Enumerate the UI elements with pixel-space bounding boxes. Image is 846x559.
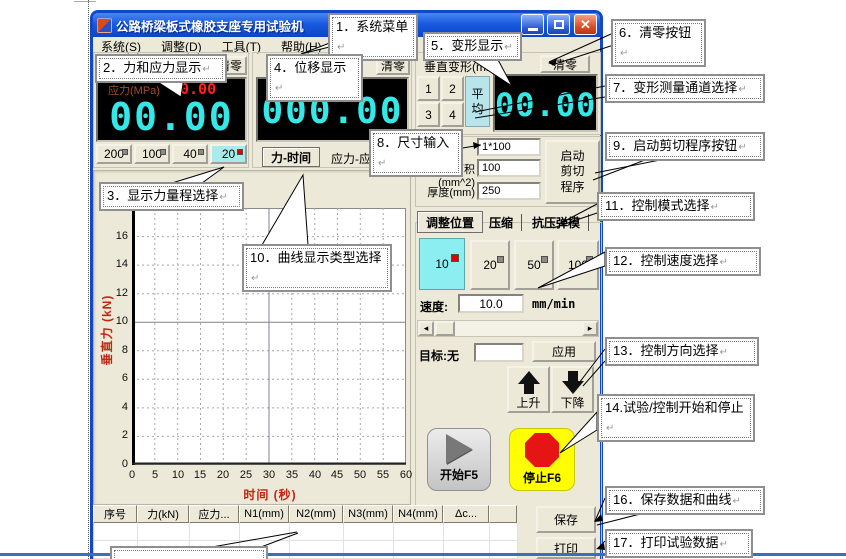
minimize-button[interactable] xyxy=(521,14,544,35)
col-header-stress: 应力... xyxy=(189,505,239,523)
speed-led xyxy=(586,256,593,263)
x-tick: 45 xyxy=(325,469,349,481)
callout-label: 4．位移显示 xyxy=(274,60,346,75)
x-tick: 25 xyxy=(234,469,258,481)
channel-button-1[interactable]: 1 xyxy=(417,76,440,101)
table-cell xyxy=(344,523,394,541)
callout-10-curve-type-select: 10．曲线显示类型选择↵ xyxy=(242,244,392,292)
callout-label: 12．控制速度选择 xyxy=(613,253,718,268)
pilcrow-mark: ↵ xyxy=(719,347,727,358)
range-led xyxy=(198,149,204,155)
stop-button[interactable]: 停止F6 xyxy=(509,428,575,491)
range-label: 20 xyxy=(222,147,235,161)
range-button-200[interactable]: 200 xyxy=(96,144,132,164)
callout-label: 13．控制方向选择 xyxy=(613,343,718,358)
stress-label: 应力(MPa) xyxy=(108,82,160,98)
table-cell xyxy=(138,523,190,541)
up-label: 上升 xyxy=(516,394,540,411)
callout-16-save-data-curve: 16．保存数据和曲线↵ xyxy=(605,486,765,515)
pilcrow-mark: ↵ xyxy=(732,496,740,507)
save-button[interactable]: 保存 xyxy=(536,506,596,533)
callout-11-control-mode-select: 11．控制模式选择↵ xyxy=(597,192,755,221)
speed-label: 100 xyxy=(568,258,588,272)
callout-label: 5．变形显示 xyxy=(431,38,503,53)
callout-label: 9．启动剪切程序按钮 xyxy=(613,138,737,153)
table-cell xyxy=(240,523,290,541)
area-input[interactable]: 100 xyxy=(477,159,541,177)
pilcrow-mark: ↵ xyxy=(504,42,512,53)
table-cell xyxy=(490,541,518,559)
callout-4-displacement-display: 4．位移显示↵ xyxy=(266,54,363,102)
range-label: 200 xyxy=(104,147,124,161)
deformation-value: 00.00 xyxy=(495,89,596,121)
speed-button-10-selected[interactable]: 10 xyxy=(419,238,465,290)
down-arrow-icon xyxy=(561,371,585,394)
callout-9-shear-program-button: 9．启动剪切程序按钮↵ xyxy=(605,132,765,161)
stop-label: 停止F6 xyxy=(523,471,561,485)
callout-13-control-direction-select: 13．控制方向选择↵ xyxy=(605,337,759,366)
callout-label: 1．系统菜单 xyxy=(336,19,408,34)
callout-label: 14.试验/控制开始和停止 xyxy=(605,400,744,415)
x-tick: 50 xyxy=(348,469,372,481)
y-tick: 2 xyxy=(98,429,128,441)
table-cell xyxy=(344,541,394,559)
channel-average-button[interactable]: 平均 xyxy=(465,76,490,127)
channel-button-3[interactable]: 3 xyxy=(417,102,440,127)
scrollbar-left-arrow[interactable]: ◂ xyxy=(418,321,434,336)
canvas-dotted-edge xyxy=(88,0,89,559)
range-led xyxy=(160,149,166,155)
x-tick: 55 xyxy=(371,469,395,481)
scrollbar-right-arrow[interactable]: ▸ xyxy=(582,321,598,336)
callout-2-force-stress-display: 2．力和应力显示↵ xyxy=(95,54,227,83)
thickness-input[interactable]: 250 xyxy=(477,182,541,200)
pilcrow-mark: ↵ xyxy=(620,48,628,59)
pilcrow-mark: ↵ xyxy=(738,142,746,153)
speed-unit-label: mm/min xyxy=(532,297,575,311)
range-button-40[interactable]: 40 xyxy=(172,144,208,164)
x-tick: 15 xyxy=(188,469,212,481)
range-label: 100 xyxy=(142,147,162,161)
x-tick: 10 xyxy=(166,469,190,481)
table-cell xyxy=(394,541,444,559)
table-cell xyxy=(290,541,344,559)
col-header-delta: Δc... xyxy=(443,505,489,523)
x-tick: 5 xyxy=(143,469,167,481)
start-label: 开始F5 xyxy=(440,468,478,482)
callout-5-deformation-display: 5．变形显示↵ xyxy=(423,32,522,61)
minimize-icon xyxy=(528,28,538,31)
callout-17-print-test-data: 17．打印试验数据↵ xyxy=(605,529,753,558)
callout-6-clear-button: 6．清零按钮↵ xyxy=(611,19,706,67)
col-header-index: 序号 xyxy=(93,505,137,523)
x-tick: 20 xyxy=(211,469,235,481)
maximize-button[interactable] xyxy=(547,14,570,35)
callout-label: 7．变形测量通道选择 xyxy=(613,80,737,95)
tab-compression[interactable]: 压缩 xyxy=(489,214,522,231)
target-input[interactable] xyxy=(474,343,524,362)
canvas-corner-line xyxy=(74,1,96,2)
start-shear-program-button[interactable]: 启动 剪切 程序 xyxy=(545,140,600,204)
y-tick: 16 xyxy=(98,230,128,242)
table-cell xyxy=(444,523,490,541)
channel-button-2[interactable]: 2 xyxy=(441,76,464,101)
callout-7-deformation-channel-select: 7．变形测量通道选择↵ xyxy=(605,74,765,103)
down-button[interactable]: 下降 xyxy=(551,366,594,413)
callout-14-test-start-stop: 14.试验/控制开始和停止↵ xyxy=(597,394,755,442)
speed-led-active xyxy=(451,254,459,262)
pilcrow-mark: ↵ xyxy=(606,423,614,434)
window-title: 公路桥梁板式橡胶支座专用试验机 xyxy=(116,16,304,35)
close-icon: ✕ xyxy=(580,17,591,33)
pilcrow-mark: ↵ xyxy=(738,84,746,95)
play-icon xyxy=(446,434,472,464)
speed-label: 20 xyxy=(483,258,496,272)
speed-button-20[interactable]: 20 xyxy=(470,240,510,290)
maximize-icon xyxy=(554,20,564,29)
callout-label: 6．清零按钮 xyxy=(619,25,691,40)
y-axis-label: 垂直力 (kN) xyxy=(98,265,112,395)
right-arrow-icon: ▸ xyxy=(588,323,593,334)
callout-label: 17．打印试验数据 xyxy=(613,535,718,550)
close-button[interactable]: ✕ xyxy=(574,14,597,35)
pilcrow-mark: ↵ xyxy=(719,257,727,268)
table-cell xyxy=(290,523,344,541)
col-header-n2: N2(mm) xyxy=(289,505,343,523)
speed-label: 10 xyxy=(435,257,448,271)
down-label: 下降 xyxy=(560,394,584,411)
page: 公路桥梁板式橡胶支座专用试验机 ✕ 系统(S) 调整(D) 工具(T) 帮助(H… xyxy=(0,0,846,559)
x-axis-label: 时间 (秒) xyxy=(210,486,330,503)
x-tick: 35 xyxy=(280,469,304,481)
col-header-force: 力(kN) xyxy=(137,505,189,523)
scrollbar-thumb[interactable] xyxy=(435,321,455,336)
results-table-header: 序号 力(kN) 应力... N1(mm) N2(mm) N3(mm) N4(m… xyxy=(93,505,517,523)
pilcrow-mark: ↵ xyxy=(251,273,259,284)
app-icon xyxy=(97,18,112,33)
up-arrow-icon xyxy=(517,371,541,394)
force-display: 应力(MPa) 0.00 00.00 xyxy=(96,77,247,142)
col-header-filler xyxy=(489,505,517,523)
tab-adjust-position[interactable]: 调整位置 xyxy=(417,211,483,233)
pilcrow-mark: ↵ xyxy=(337,42,345,53)
tab-force-time[interactable]: 力-时间 xyxy=(262,147,320,167)
range-label: 40 xyxy=(183,147,196,161)
pilcrow-mark: ↵ xyxy=(275,83,283,94)
speed-value-input[interactable]: 10.0 xyxy=(458,294,524,313)
callout-label: 3．显示力量程选择 xyxy=(107,188,218,203)
force-value: 00.00 xyxy=(98,98,245,136)
range-led-active xyxy=(237,149,243,155)
table-cell xyxy=(444,541,490,559)
speed-led xyxy=(541,256,548,263)
stop-octagon-icon xyxy=(525,433,559,467)
table-cell xyxy=(94,523,138,541)
pilcrow-mark: ↵ xyxy=(219,192,227,203)
x-tick: 40 xyxy=(303,469,327,481)
table-cell xyxy=(190,523,240,541)
speed-row-label: 速度: xyxy=(420,298,448,315)
range-led xyxy=(122,149,128,155)
x-tick: 60 xyxy=(394,469,418,481)
callout-label: 8．尺寸输入 xyxy=(377,135,449,150)
table-cell xyxy=(490,523,518,541)
start-button[interactable]: 开始F5 xyxy=(427,428,491,491)
callout-label: 16．保存数据和曲线 xyxy=(613,492,731,507)
deformation-display: 00.00 xyxy=(493,74,598,132)
col-header-n1: N1(mm) xyxy=(239,505,289,523)
callout-label: 2．力和应力显示 xyxy=(103,60,201,75)
col-header-n4: N4(mm) xyxy=(393,505,443,523)
left-arrow-icon: ◂ xyxy=(424,323,429,334)
tab-compression-modulus[interactable]: 抗压弹模 xyxy=(532,214,589,231)
up-button[interactable]: 上升 xyxy=(507,366,550,413)
range-button-20-selected[interactable]: 20 xyxy=(210,144,247,164)
deformation-clear-button[interactable]: 清零 xyxy=(540,55,590,73)
size-input[interactable]: 1*100 xyxy=(477,138,541,156)
callout-label: 10．曲线显示类型选择 xyxy=(250,250,381,265)
pilcrow-mark: ↵ xyxy=(719,539,727,550)
x-tick: 30 xyxy=(257,469,281,481)
pilcrow-mark: ↵ xyxy=(378,158,386,169)
speed-button-100[interactable]: 100 xyxy=(557,240,599,290)
y-tick: 4 xyxy=(98,401,128,413)
thickness-label: 厚度(mm) xyxy=(419,184,475,200)
callout-12-control-speed-select: 12．控制速度选择↵ xyxy=(605,247,761,276)
apply-button[interactable]: 应用 xyxy=(532,341,596,362)
target-label: 目标:无 xyxy=(419,347,459,364)
speed-led xyxy=(497,256,504,263)
callout-3-force-range-select: 3．显示力量程选择↵ xyxy=(99,182,244,211)
col-header-n3: N3(mm) xyxy=(343,505,393,523)
x-tick: 0 xyxy=(120,469,144,481)
table-cell xyxy=(394,523,444,541)
speed-scrollbar[interactable]: ◂ ▸ xyxy=(417,320,599,337)
callout-bottom-partial xyxy=(110,546,268,559)
pilcrow-mark: ↵ xyxy=(202,64,210,75)
speed-button-50[interactable]: 50 xyxy=(514,240,554,290)
callout-label: 11．控制模式选择 xyxy=(605,198,710,213)
pilcrow-mark: ↵ xyxy=(711,202,719,213)
callout-8-size-input: 8．尺寸输入↵ xyxy=(369,129,463,177)
range-button-100[interactable]: 100 xyxy=(134,144,170,164)
speed-label: 50 xyxy=(527,258,540,272)
channel-button-4[interactable]: 4 xyxy=(441,102,464,127)
